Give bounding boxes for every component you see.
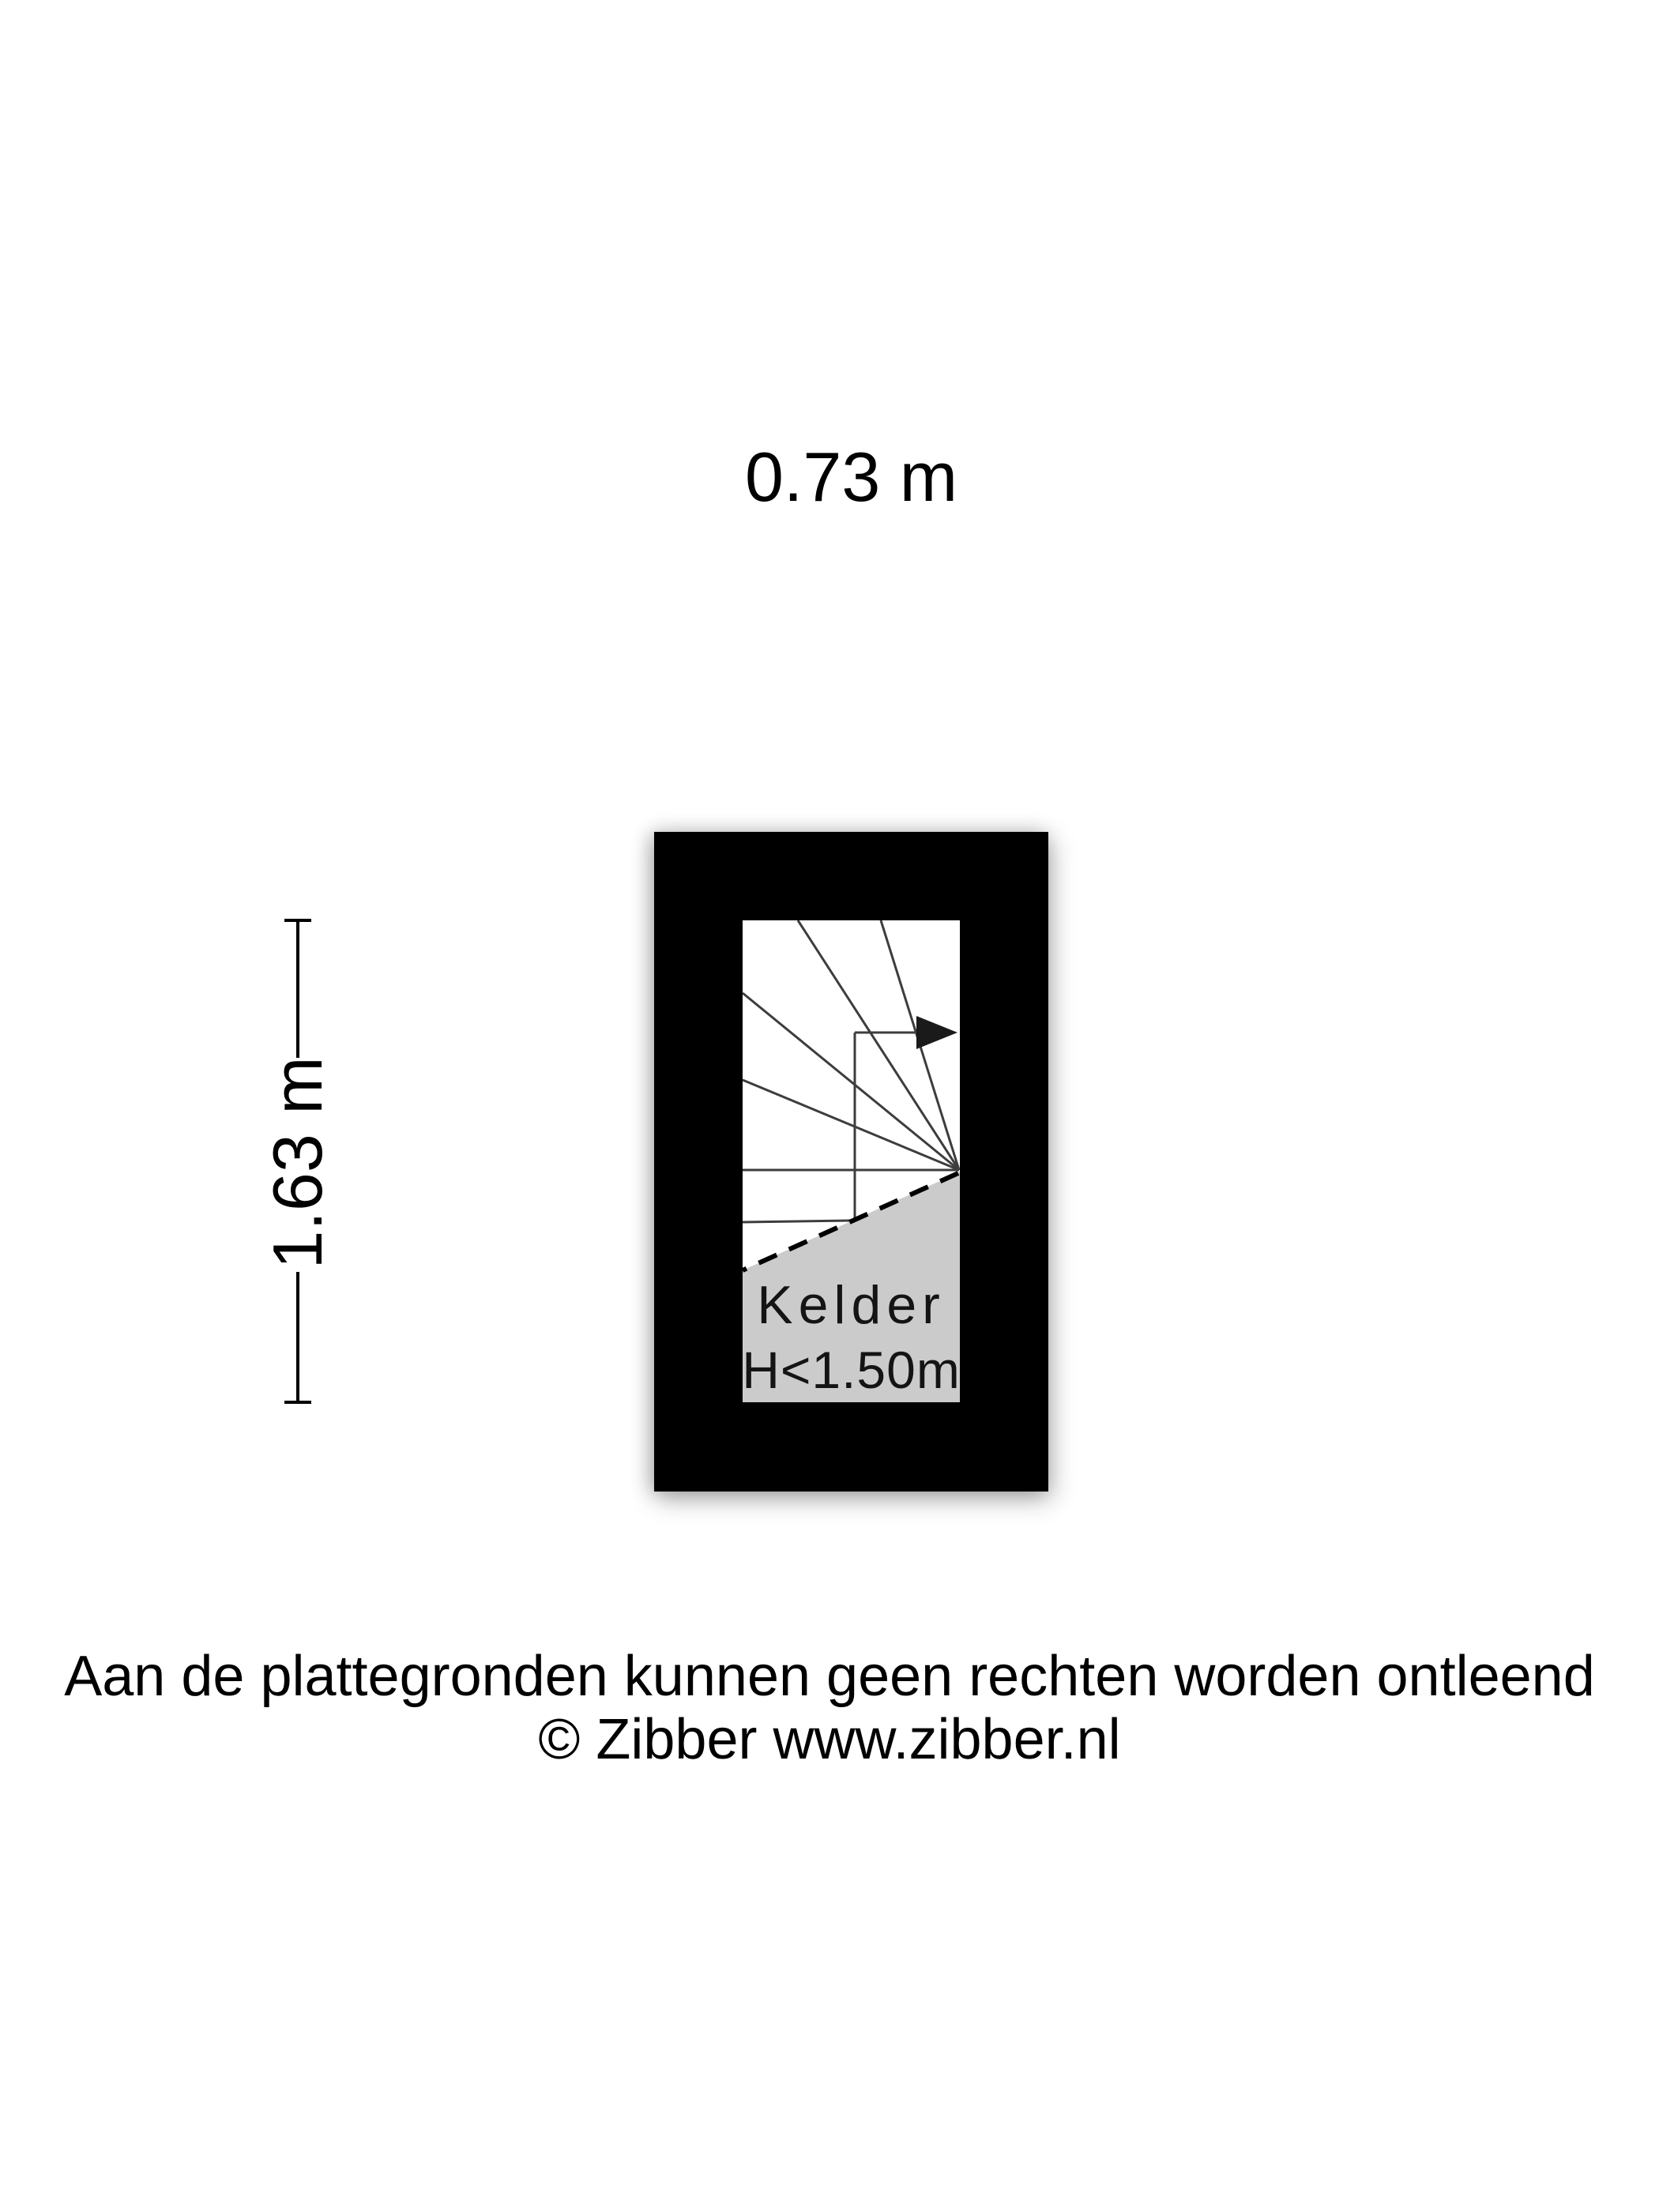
width-dimension-label: 0.73 m: [654, 439, 1048, 515]
disclaimer-text: Aan de plattegronden kunnen geen rechten…: [0, 1645, 1659, 1708]
basement-plan-walls: Kelder H<1.50m: [654, 832, 1048, 1492]
height-clearance-label: H<1.50m: [743, 1341, 960, 1398]
height-dimension-line-upper: [296, 920, 299, 1058]
stair-tread-lines: [743, 920, 959, 1222]
stair-direction-arrow-icon: [916, 1016, 957, 1049]
footer: Aan de plattegronden kunnen geen rechten…: [0, 1645, 1659, 1771]
room-label: Kelder: [743, 1277, 960, 1334]
height-dimension-label: 1.63 m: [260, 1056, 336, 1269]
basement-room: Kelder H<1.50m: [743, 920, 960, 1402]
floorplan-page: 0.73 m 1.63 m: [0, 0, 1659, 2212]
copyright-text: © Zibber www.zibber.nl: [0, 1708, 1659, 1771]
height-dimension-line-lower: [296, 1272, 299, 1402]
height-dimension-cap-bottom: [284, 1401, 311, 1404]
